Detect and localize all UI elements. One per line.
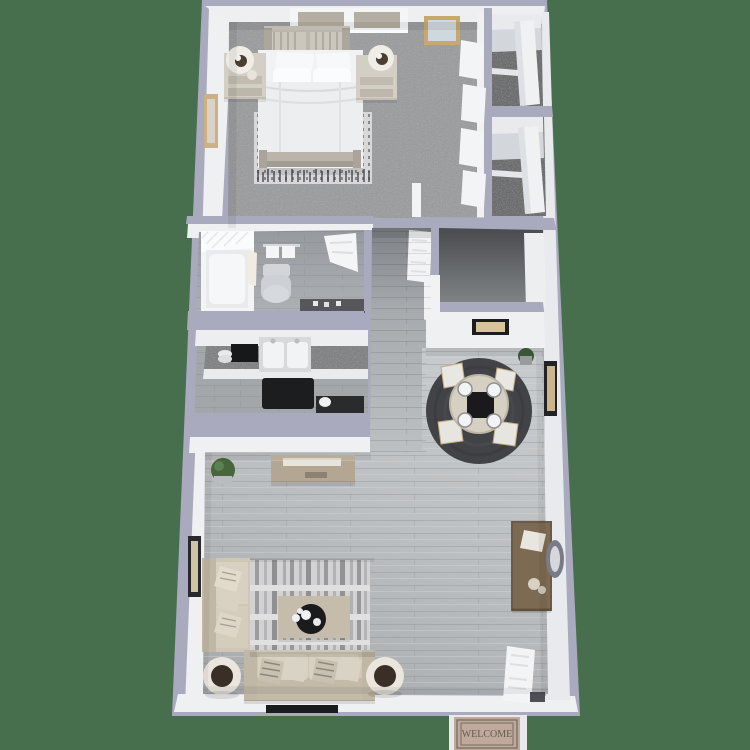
svg-text:WELCOME: WELCOME bbox=[462, 729, 513, 740]
